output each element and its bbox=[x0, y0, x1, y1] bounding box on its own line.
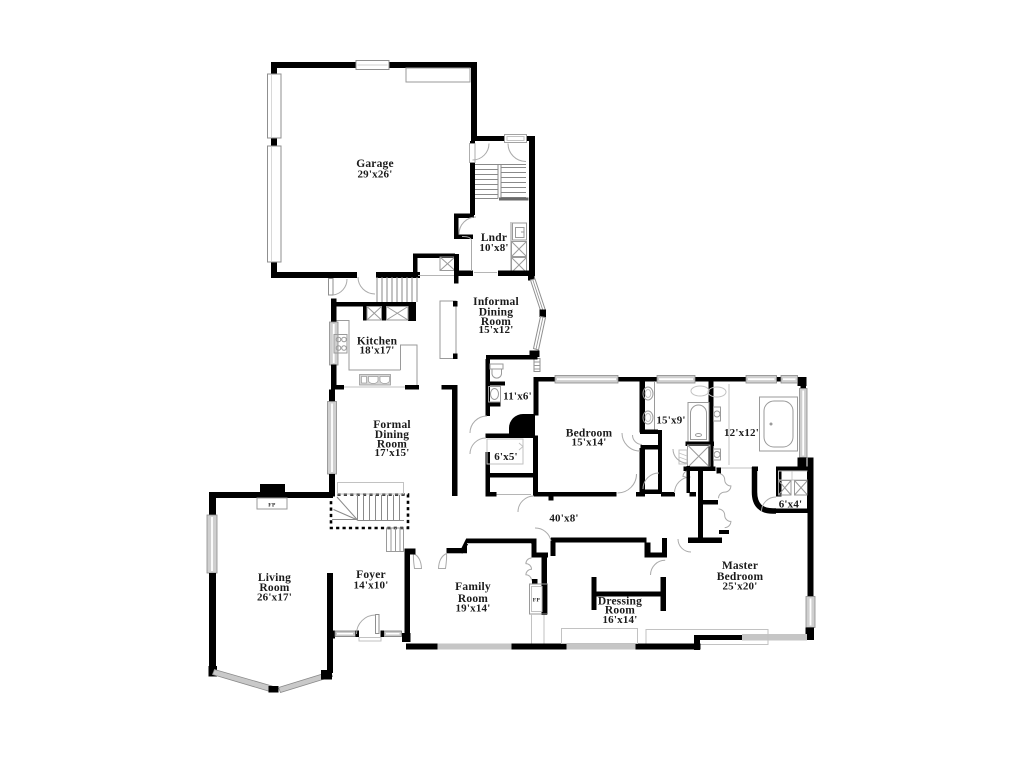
svg-text:11'x6': 11'x6' bbox=[503, 390, 532, 402]
svg-text:6'x4': 6'x4' bbox=[779, 498, 803, 510]
svg-text:25'x20': 25'x20' bbox=[722, 581, 757, 593]
svg-text:FP: FP bbox=[268, 503, 276, 509]
svg-text:19'x14': 19'x14' bbox=[455, 602, 490, 614]
svg-text:6'x5': 6'x5' bbox=[494, 451, 518, 463]
svg-text:40'x8': 40'x8' bbox=[549, 513, 578, 525]
svg-text:15'x12': 15'x12' bbox=[478, 324, 513, 336]
svg-text:17'x15': 17'x15' bbox=[374, 447, 409, 459]
svg-text:10'x8': 10'x8' bbox=[479, 242, 508, 254]
svg-text:26'x17': 26'x17' bbox=[257, 591, 292, 603]
svg-text:14'x10': 14'x10' bbox=[353, 579, 388, 591]
svg-text:15'x14': 15'x14' bbox=[571, 437, 606, 449]
svg-text:29'x26': 29'x26' bbox=[357, 169, 392, 181]
svg-text:15'x9': 15'x9' bbox=[656, 415, 685, 427]
svg-text:Family: Family bbox=[455, 581, 491, 593]
svg-text:16'x14': 16'x14' bbox=[602, 614, 637, 626]
svg-text:FP: FP bbox=[533, 598, 541, 604]
svg-text:18'x17': 18'x17' bbox=[359, 344, 394, 356]
svg-text:12'x12': 12'x12' bbox=[724, 427, 759, 439]
